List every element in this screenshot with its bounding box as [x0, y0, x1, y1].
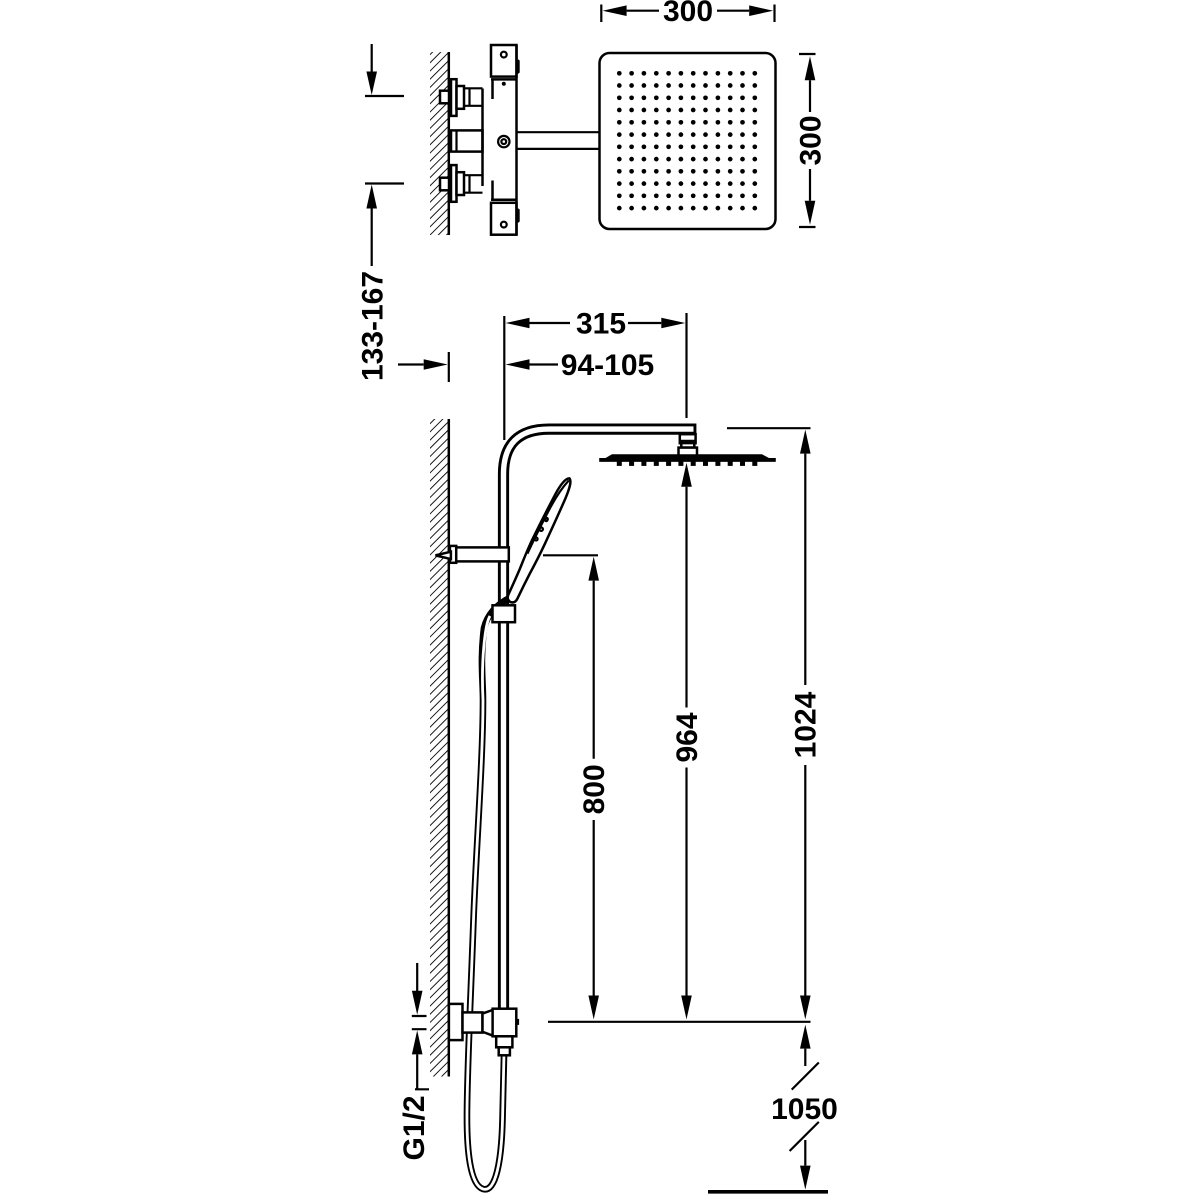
svg-text:800: 800: [578, 764, 611, 814]
svg-text:1050: 1050: [771, 1093, 838, 1126]
svg-text:133-167: 133-167: [356, 271, 389, 381]
svg-text:94-105: 94-105: [561, 349, 654, 382]
svg-text:315: 315: [576, 307, 626, 340]
svg-text:964: 964: [671, 712, 704, 762]
svg-text:G1/2: G1/2: [398, 1095, 431, 1160]
svg-text:300: 300: [663, 0, 713, 28]
svg-text:1024: 1024: [790, 691, 823, 758]
svg-text:300: 300: [794, 115, 827, 165]
